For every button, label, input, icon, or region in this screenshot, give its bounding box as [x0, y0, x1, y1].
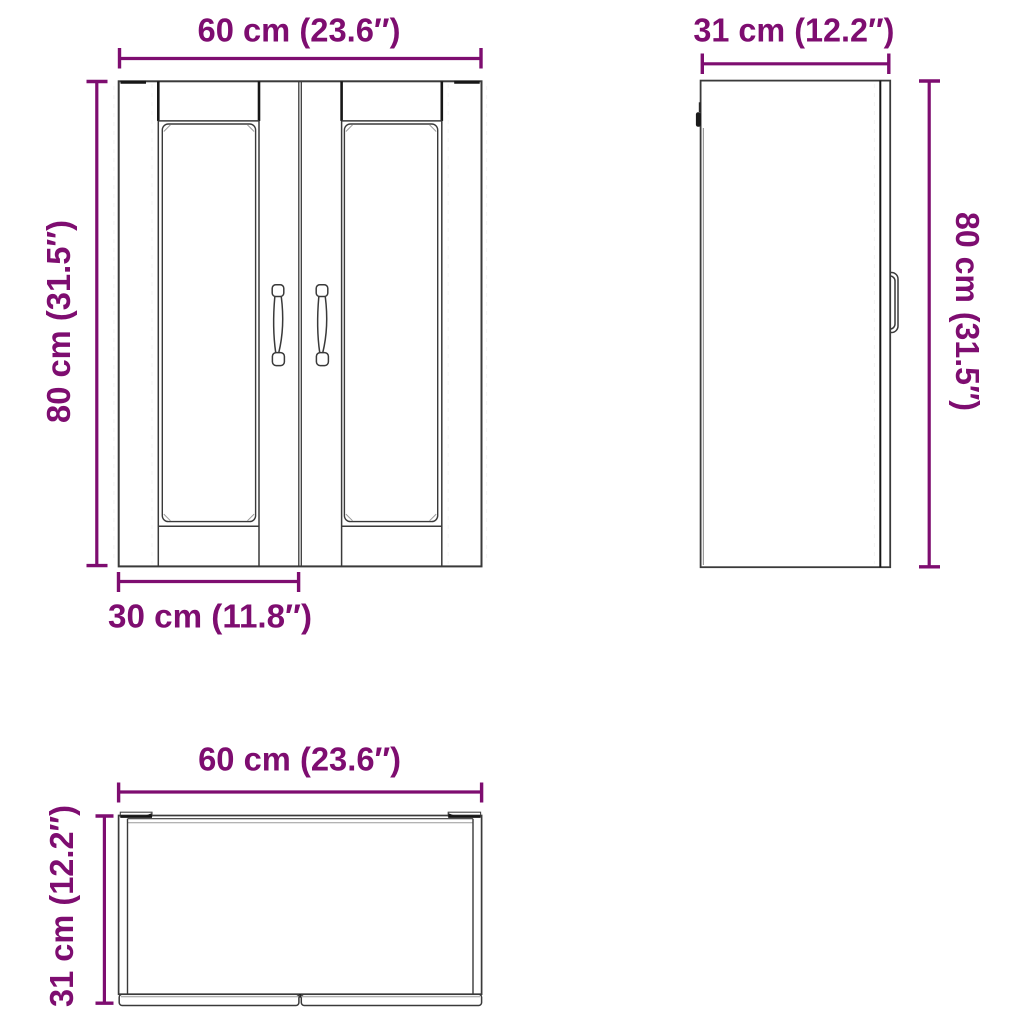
svg-text:60 cm (23.6″): 60 cm (23.6″) [198, 741, 401, 778]
svg-text:80 cm (31.5″): 80 cm (31.5″) [949, 212, 986, 411]
svg-text:60 cm (23.6″): 60 cm (23.6″) [198, 12, 401, 49]
svg-text:80 cm (31.5″): 80 cm (31.5″) [40, 220, 77, 423]
svg-text:31 cm (12.2″): 31 cm (12.2″) [693, 11, 894, 48]
svg-text:30 cm (11.8″): 30 cm (11.8″) [108, 598, 312, 635]
svg-text:31 cm (12.2″): 31 cm (12.2″) [43, 805, 80, 1007]
